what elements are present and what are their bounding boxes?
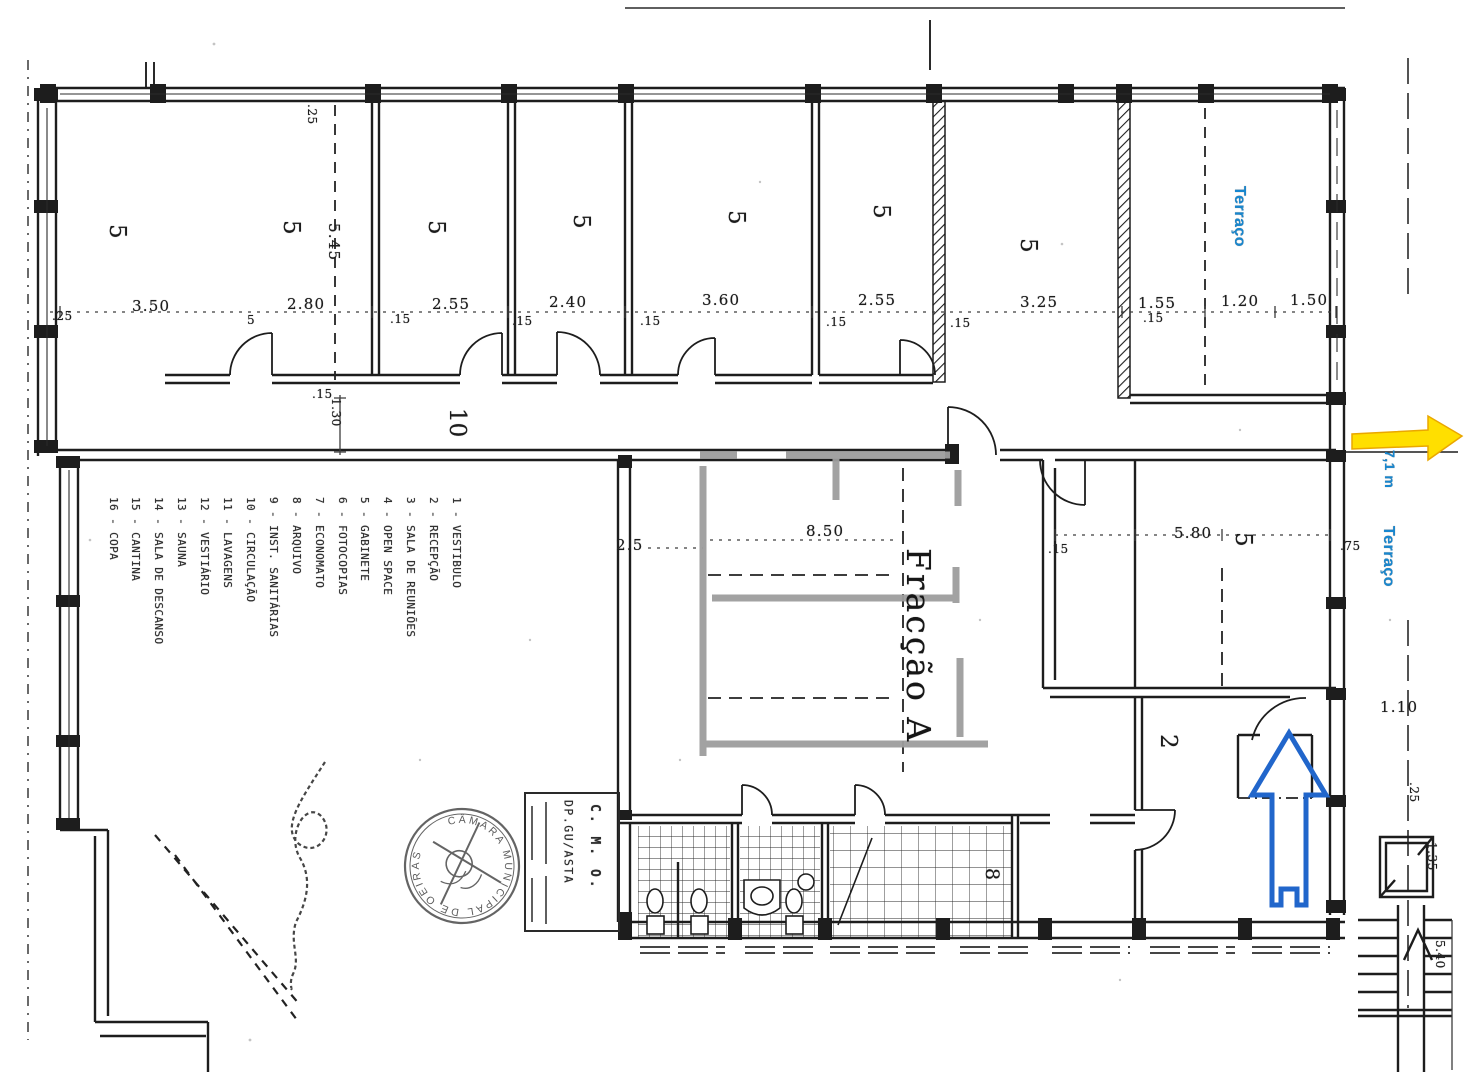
legend-item-6: 6 - FOTOCOPIAS [337, 497, 348, 595]
legend-item-12: 12 - VESTIÁRIO [199, 497, 210, 595]
dimension-label: 5.80 [1174, 526, 1212, 541]
dimension-label: 3.50 [132, 299, 170, 314]
dimension-label: 3.25 [1020, 295, 1058, 310]
dimension-label: .15 [1048, 543, 1069, 555]
dimension-label: 5.45 [326, 223, 341, 261]
dimension-label: .15 [512, 315, 533, 327]
dimension-label: 1.55 [1138, 296, 1176, 311]
annotation-terraco-right: Terraço [1380, 526, 1396, 587]
dimension-label: 2.55 [432, 297, 470, 312]
dimension-label: 1.30 [330, 398, 342, 427]
room-label: 5 [724, 210, 747, 225]
office-box-line1: C. M. O. [588, 804, 601, 891]
legend-item-8: 8 - ARQUIVO [291, 497, 302, 574]
dimension-label: .25 [1408, 782, 1420, 803]
legend-item-9: 9 - INST. SANITÁRIAS [268, 497, 279, 637]
legend-item-15: 15 - CANTINA [130, 497, 141, 581]
dimension-label: 2.5 [616, 538, 643, 553]
legend-item-13: 13 - SAUNA [176, 497, 187, 567]
dimension-label: .15 [826, 316, 847, 328]
signature [290, 762, 327, 989]
scan-speckles [89, 43, 1392, 1042]
dimension-label: .15 [950, 317, 971, 329]
room-label: 5 [105, 224, 128, 239]
floor-plan-sheet: CÂMARA MUNICIPAL DE OEIRAS Fracção A C. … [0, 0, 1465, 1075]
yellow-arrow [1352, 416, 1462, 460]
legend-item-14: 14 - SALA DE DESCANSO [153, 497, 164, 644]
gray-highlight [700, 455, 988, 756]
stamp-ring-text: CÂMARA MUNICIPAL DE OEIRAS [396, 800, 528, 932]
office-box: C. M. O. DP.GU/ASTA [524, 792, 620, 932]
dimension-label: 3.60 [702, 293, 740, 308]
room-label: 5 [1231, 532, 1254, 547]
room-label: 5 [424, 220, 447, 235]
dimension-label: 2.55 [858, 293, 896, 308]
structural-wall [1118, 101, 1130, 398]
legend-item-2: 2 - RECEPÇÃO [428, 497, 439, 581]
room-label: 5 [569, 214, 592, 229]
room-label: 10 [445, 408, 468, 437]
dimension-label: 1.35 [1426, 842, 1438, 871]
annotation-terraco-top: Terraço [1231, 186, 1247, 247]
structural-wall [933, 101, 945, 382]
legend-item-3: 3 - SALA DE REUNIÕES [405, 497, 416, 637]
office-box-line2: DP.GU/ASTA [562, 800, 574, 884]
annotation-width: 7,1 m [1383, 450, 1397, 488]
dimension-label: .25 [52, 310, 73, 322]
dimension-label: .15 [1143, 312, 1164, 324]
room-label: 2 [1156, 734, 1179, 749]
dimension-label: .25 [306, 104, 318, 125]
legend-item-4: 4 - OPEN SPACE [382, 497, 393, 595]
blue-arrow [1252, 733, 1326, 905]
municipal-stamp: CÂMARA MUNICIPAL DE OEIRAS [390, 794, 534, 938]
dimension-label: 5 [247, 314, 255, 326]
legend-item-11: 11 - LAVAGENS [222, 497, 233, 588]
dimension-label: 2.80 [287, 297, 325, 312]
dimension-label: 5.40 [1434, 940, 1446, 969]
legend-item-5: 5 - GABINETE [359, 497, 370, 581]
dimension-label: 1.50 [1290, 293, 1328, 308]
dimension-label: .15 [390, 313, 411, 325]
room-label: 5 [279, 220, 302, 235]
dimension-label: 1.10 [1380, 700, 1418, 715]
room-label: 5 [1016, 238, 1039, 253]
legend-item-10: 10 - CIRCULAÇÃO [245, 497, 256, 602]
dimension-label: .75 [1340, 540, 1361, 552]
legend-item-16: 16 - COPA [108, 497, 119, 560]
room-label: 8 [982, 868, 1001, 880]
dimension-label: 8.50 [806, 524, 844, 539]
dimension-label: 1.20 [1221, 294, 1259, 309]
fraccao-label: Fracção A [902, 548, 935, 744]
svg-text:CÂMARA MUNICIPAL DE OEIRAS: CÂMARA MUNICIPAL DE OEIRAS [396, 800, 528, 932]
legend-item-7: 7 - ECONOMATO [314, 497, 325, 588]
room-label: 5 [869, 204, 892, 219]
dimension-label: .15 [312, 388, 333, 400]
legend-item-1: 1 - VESTIBULO [451, 497, 462, 588]
dimension-label: .15 [640, 315, 661, 327]
dimension-label: 2.40 [549, 295, 587, 310]
